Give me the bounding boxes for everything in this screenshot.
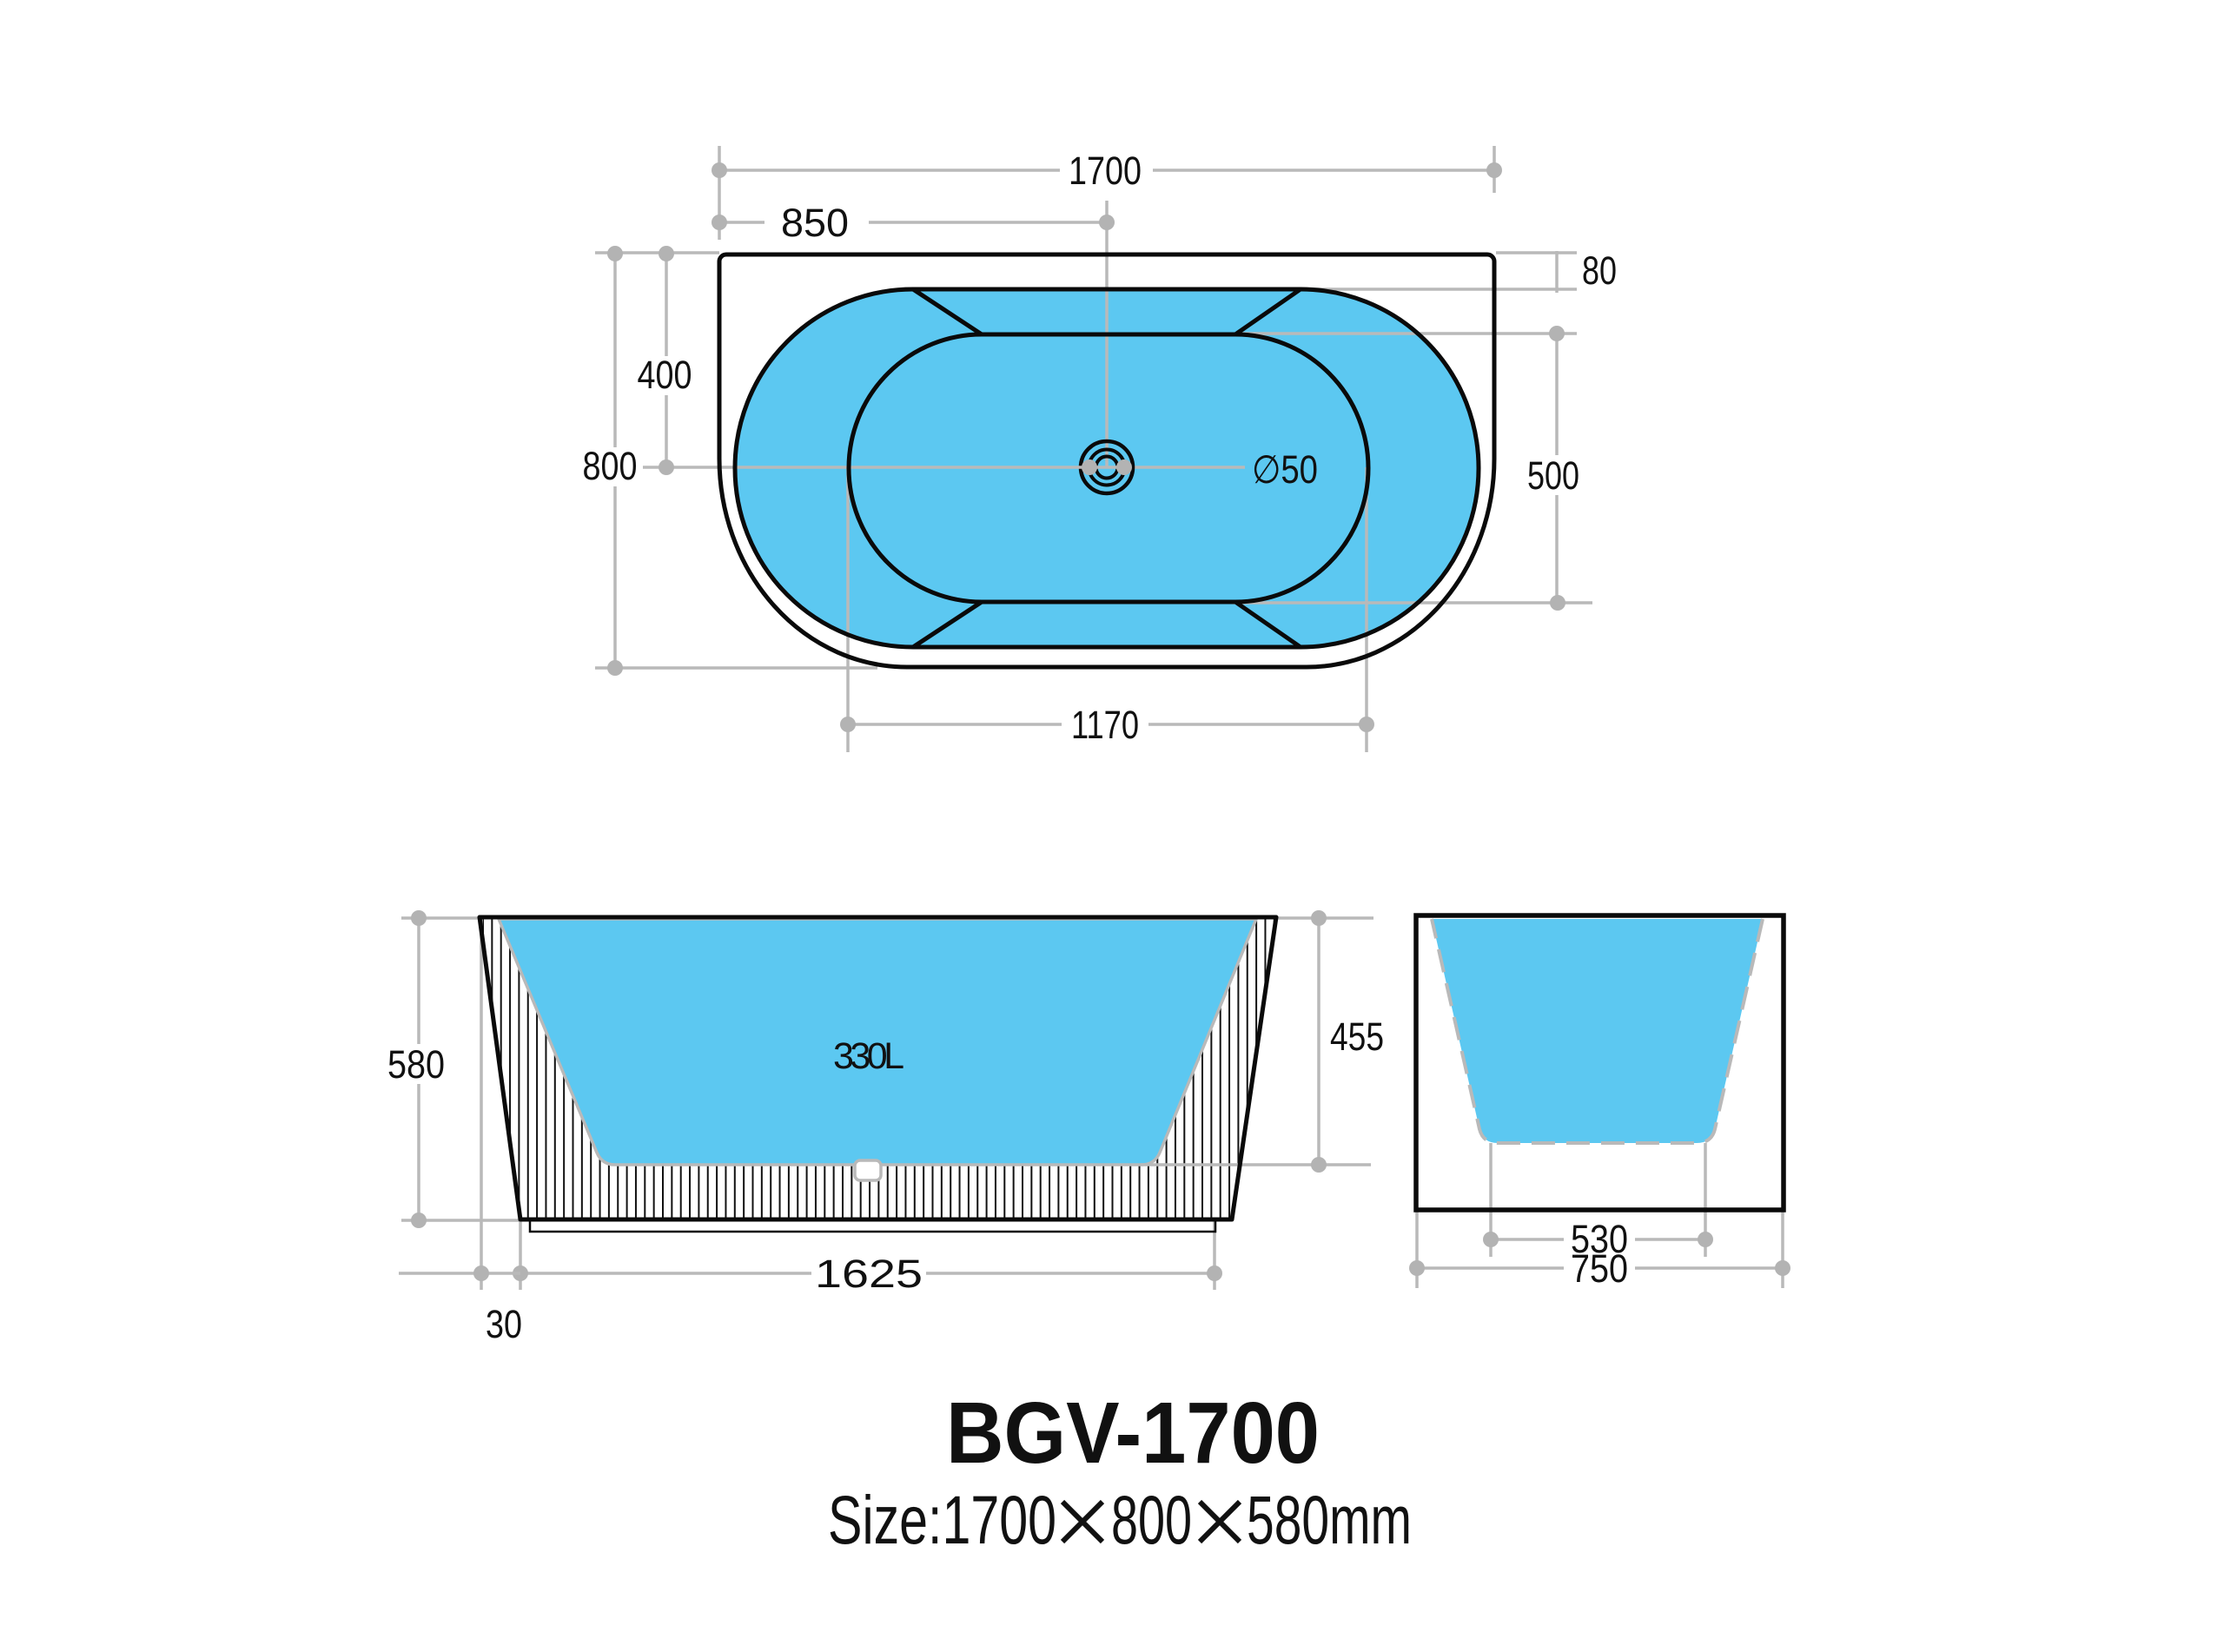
svg-text:1170: 1170 bbox=[1071, 703, 1139, 747]
svg-text:800: 800 bbox=[583, 444, 638, 488]
svg-text:BGV-1700: BGV-1700 bbox=[946, 1384, 1320, 1482]
svg-text:∅50: ∅50 bbox=[1252, 447, 1318, 492]
svg-text:80: 80 bbox=[1582, 248, 1617, 293]
svg-text:580mm: 580mm bbox=[1247, 1481, 1412, 1558]
svg-text:500: 500 bbox=[1527, 453, 1579, 498]
svg-text:800: 800 bbox=[1111, 1481, 1192, 1558]
svg-text:400: 400 bbox=[638, 353, 692, 397]
svg-text:Size:1700: Size:1700 bbox=[828, 1481, 1056, 1558]
svg-text:330L: 330L bbox=[833, 1035, 908, 1077]
svg-text:1625: 1625 bbox=[815, 1252, 923, 1296]
svg-text:30: 30 bbox=[486, 1302, 522, 1346]
svg-text:580: 580 bbox=[387, 1042, 445, 1087]
svg-text:750: 750 bbox=[1571, 1246, 1628, 1291]
svg-text:455: 455 bbox=[1330, 1014, 1384, 1059]
svg-text:850: 850 bbox=[781, 201, 849, 245]
svg-text:1700: 1700 bbox=[1069, 149, 1142, 193]
